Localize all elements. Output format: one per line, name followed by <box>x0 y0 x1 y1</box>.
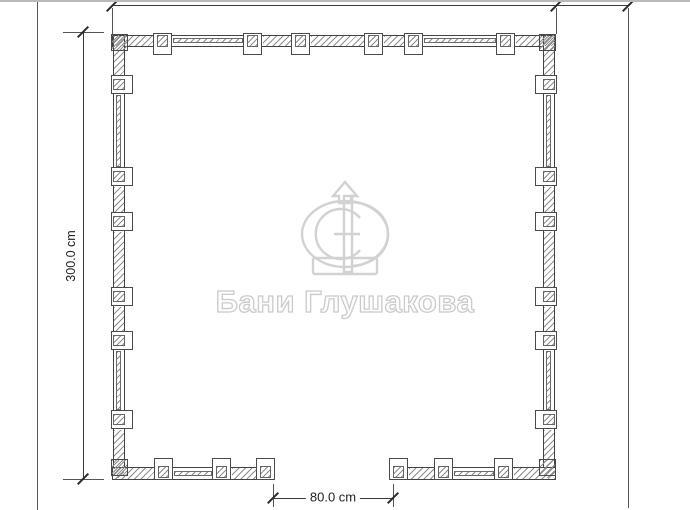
corner-post <box>539 34 556 51</box>
stud-post <box>243 33 262 55</box>
wall-infill-strip <box>116 95 121 167</box>
corner-post <box>539 459 556 476</box>
wall-infill-strip <box>454 471 494 476</box>
stud-post <box>111 75 133 94</box>
stud-post <box>111 331 133 350</box>
stud-post <box>212 458 231 480</box>
extension-line <box>556 8 557 34</box>
wall-plate-hatch <box>311 36 364 46</box>
watermark-logo <box>272 170 418 282</box>
stud-post <box>535 167 557 186</box>
stud-post <box>154 458 173 480</box>
stud-post <box>494 458 513 480</box>
wall-plate-hatch <box>114 187 124 212</box>
stud-post <box>256 458 275 480</box>
stud-post <box>291 33 310 55</box>
top-border <box>0 0 690 2</box>
wall-plate-hatch <box>544 307 554 331</box>
dimension-label-left: 300.0 cm <box>64 230 78 281</box>
stud-post <box>111 410 133 429</box>
floor-plan-canvas: Бани Глушакова 300.0 cm 50.0 cm 300.0 cm… <box>0 0 690 510</box>
wall-plate-hatch <box>114 232 124 287</box>
wall-plate-hatch <box>409 468 434 479</box>
corner-post <box>111 34 128 51</box>
stud-post <box>535 75 557 94</box>
stud-post <box>111 212 133 231</box>
wall-infill-strip <box>173 38 243 43</box>
extension-line <box>112 8 113 34</box>
stud-post <box>535 212 557 231</box>
wall-infill-strip <box>546 95 551 167</box>
dimension-line-top <box>112 5 628 6</box>
wall-plate-hatch <box>263 36 291 46</box>
extension-line <box>628 8 629 508</box>
wall-infill-strip <box>546 351 551 410</box>
extension-line <box>37 0 38 510</box>
dimension-line-left <box>83 32 84 479</box>
logo-letter-g <box>316 209 360 259</box>
stud-post <box>111 167 133 186</box>
stud-post <box>389 458 408 480</box>
door-opening <box>275 467 390 480</box>
wall-infill-strip <box>174 471 212 476</box>
stud-post <box>434 458 453 480</box>
wall-plate-hatch <box>114 307 124 331</box>
corner-post <box>111 459 128 476</box>
wall-infill-strip <box>424 38 496 43</box>
stud-post <box>153 33 172 55</box>
wall-infill-strip <box>116 351 121 410</box>
dimension-label-door: 80.0 cm <box>306 490 360 505</box>
stud-post <box>111 287 133 306</box>
stud-post <box>535 287 557 306</box>
wall-plate-hatch <box>544 232 554 287</box>
stud-post <box>404 33 423 55</box>
watermark-brand-text: Бани Глушакова <box>216 284 474 320</box>
wall-plate-hatch <box>384 36 404 46</box>
stud-post <box>535 410 557 429</box>
wall-plate-hatch <box>544 187 554 212</box>
stud-post <box>364 33 383 55</box>
wall-plate-hatch <box>232 468 256 479</box>
stud-post <box>496 33 515 55</box>
stud-post <box>535 331 557 350</box>
